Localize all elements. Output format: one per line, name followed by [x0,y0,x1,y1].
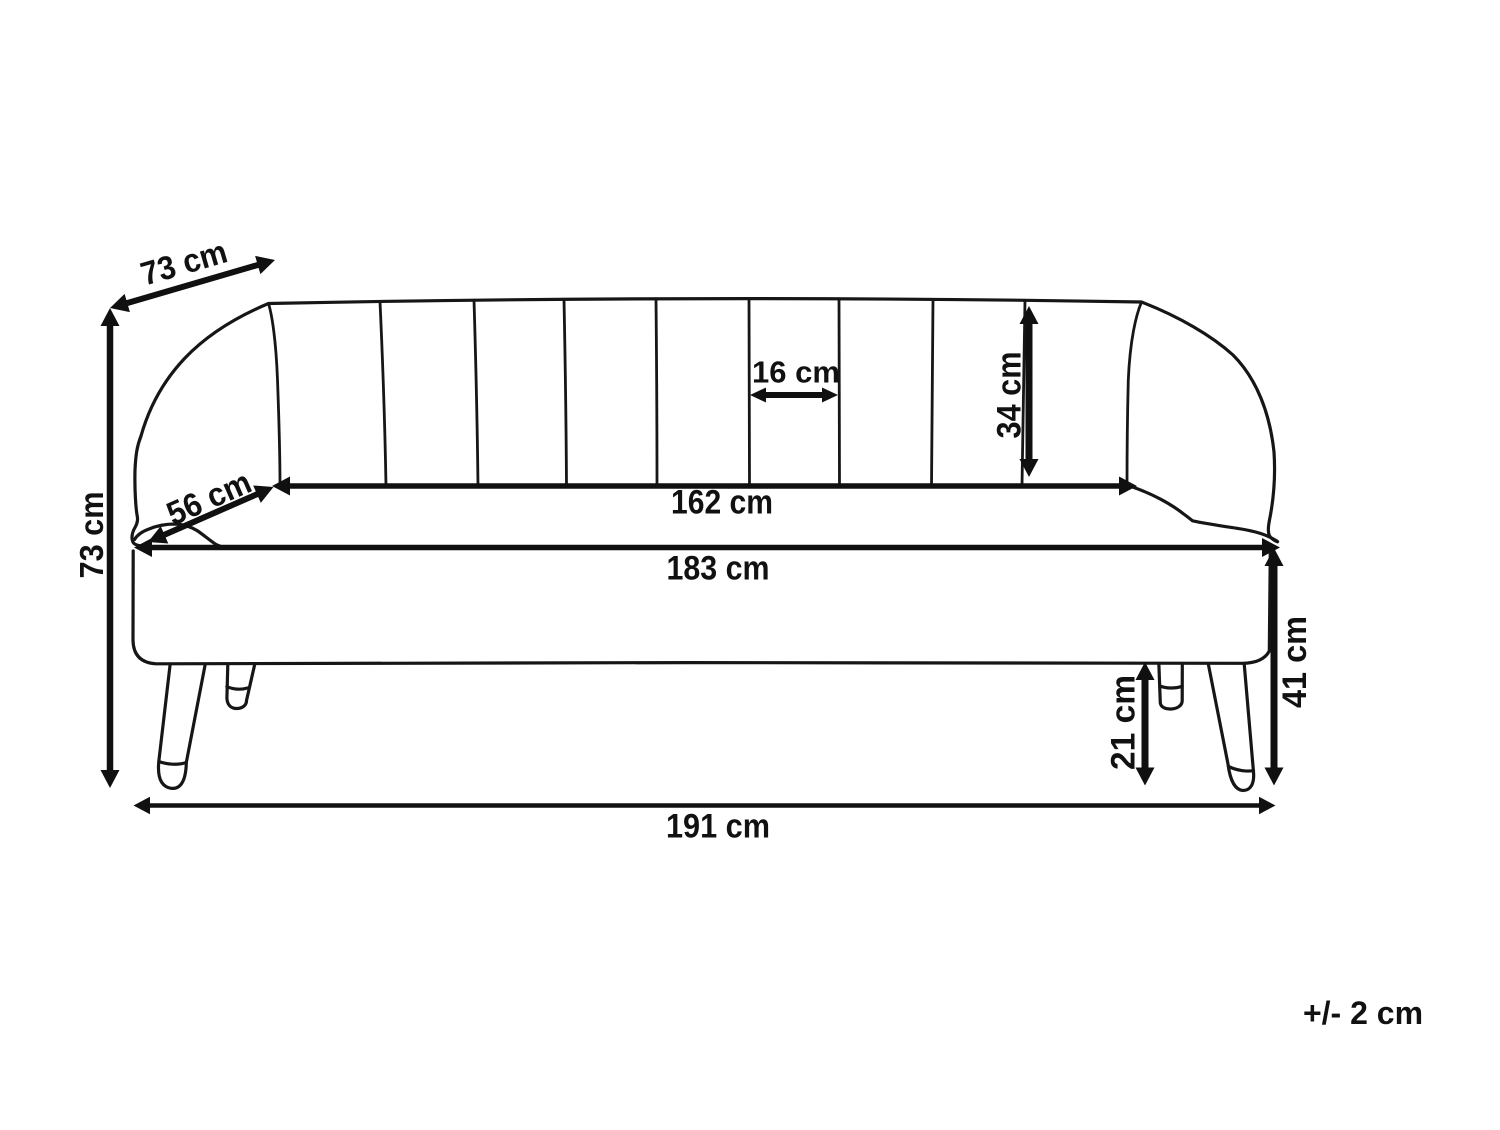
svg-text:191 cm: 191 cm [666,808,770,846]
svg-text:162 cm: 162 cm [671,484,773,522]
svg-text:34 cm: 34 cm [991,352,1029,439]
svg-text:21 cm: 21 cm [1105,675,1143,770]
svg-text:+/- 2 cm: +/- 2 cm [1303,995,1423,1031]
svg-text:41 cm: 41 cm [1276,616,1314,708]
svg-text:73 cm: 73 cm [73,492,110,579]
svg-text:183 cm: 183 cm [667,550,770,588]
svg-text:16 cm: 16 cm [752,355,840,390]
